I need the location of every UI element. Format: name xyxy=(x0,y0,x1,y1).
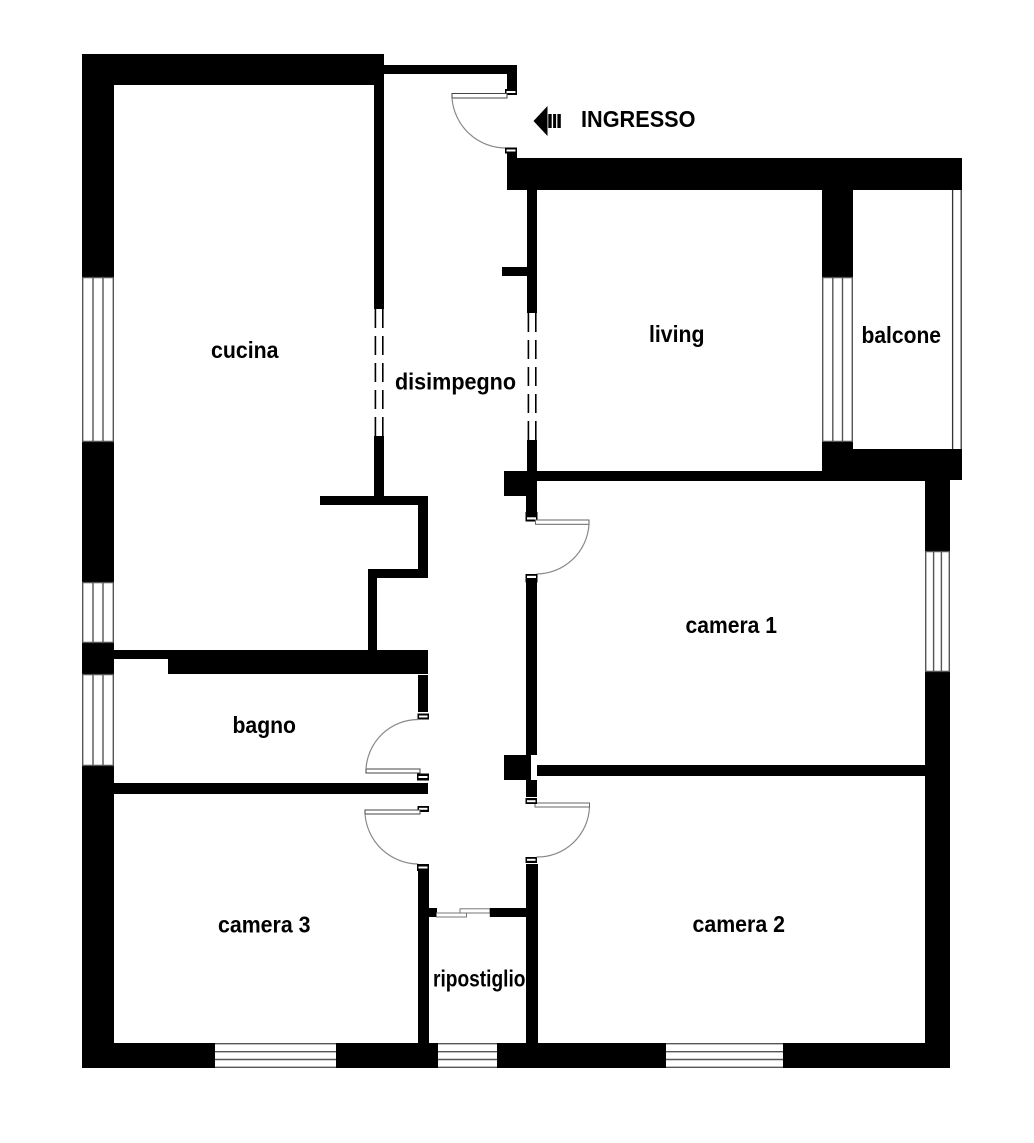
svg-text:living: living xyxy=(649,321,705,347)
svg-text:balcone: balcone xyxy=(862,322,942,348)
svg-text:bagno: bagno xyxy=(233,712,297,738)
svg-text:camera 2: camera 2 xyxy=(693,911,786,937)
svg-text:cucina: cucina xyxy=(211,337,279,363)
svg-text:INGRESSO: INGRESSO xyxy=(581,106,696,132)
svg-text:camera 3: camera 3 xyxy=(218,912,311,938)
svg-text:ripostiglio: ripostiglio xyxy=(433,966,526,992)
svg-text:camera 1: camera 1 xyxy=(686,612,778,638)
svg-text:disimpegno: disimpegno xyxy=(395,369,516,395)
